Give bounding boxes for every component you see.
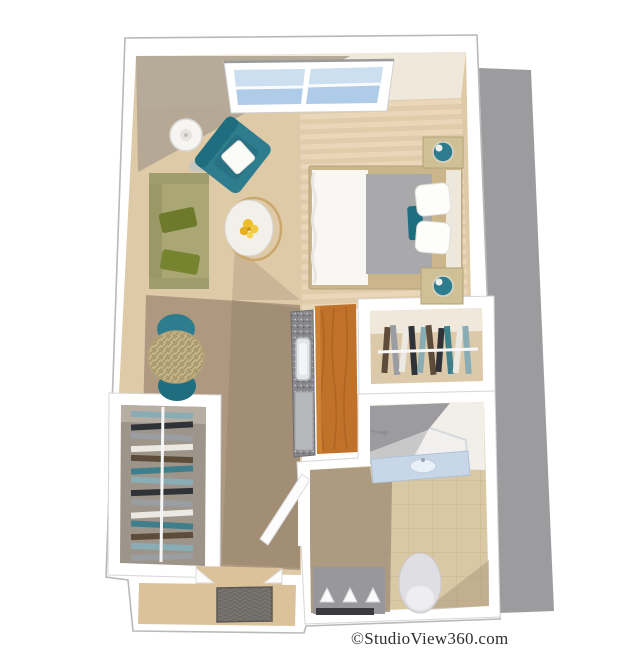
lamp-highlight xyxy=(436,145,443,152)
doormat xyxy=(217,587,272,622)
lamp-finial xyxy=(184,133,188,137)
olive-sofa xyxy=(149,173,209,289)
flower-center xyxy=(247,227,251,231)
round-coffee-table xyxy=(225,198,281,260)
window-glass-left-highlight xyxy=(234,69,305,88)
hall-shadow-dark xyxy=(222,300,300,568)
floor-lamp xyxy=(170,119,202,151)
sofa-armrest-bottom xyxy=(149,278,209,289)
bed-pillow xyxy=(415,221,452,255)
window-muntin-left xyxy=(236,87,303,88)
kitchen-sink-basin xyxy=(299,343,307,375)
window xyxy=(224,60,394,113)
nightstand-bottom xyxy=(421,268,463,304)
kitchen-appliance xyxy=(295,392,313,450)
side-closet-rod xyxy=(161,407,163,562)
walk-in-closet xyxy=(358,296,495,396)
watermark-text: ©StudioView360.com xyxy=(351,629,591,649)
bed-pillow xyxy=(415,182,452,216)
shower-head xyxy=(382,430,387,435)
side-closet xyxy=(108,393,221,578)
table-lamp-teal xyxy=(433,142,453,162)
sofa-back xyxy=(149,173,162,289)
bed-duvet xyxy=(312,170,368,285)
sofa-armrest-top xyxy=(149,173,209,184)
toilet-seat xyxy=(406,586,434,610)
table-lamp-teal xyxy=(433,276,453,296)
kitchenette xyxy=(291,304,358,457)
shelf-bar xyxy=(316,608,374,615)
window-muntin-right xyxy=(308,84,380,86)
nightstand-top xyxy=(423,137,463,168)
floorplan-rendering xyxy=(0,0,640,670)
vanity-faucet xyxy=(421,458,425,462)
rattan-dining-table xyxy=(148,331,204,383)
floorplan-image: ©StudioView360.com xyxy=(0,0,640,670)
lamp-highlight xyxy=(436,279,443,286)
flower xyxy=(247,232,254,239)
